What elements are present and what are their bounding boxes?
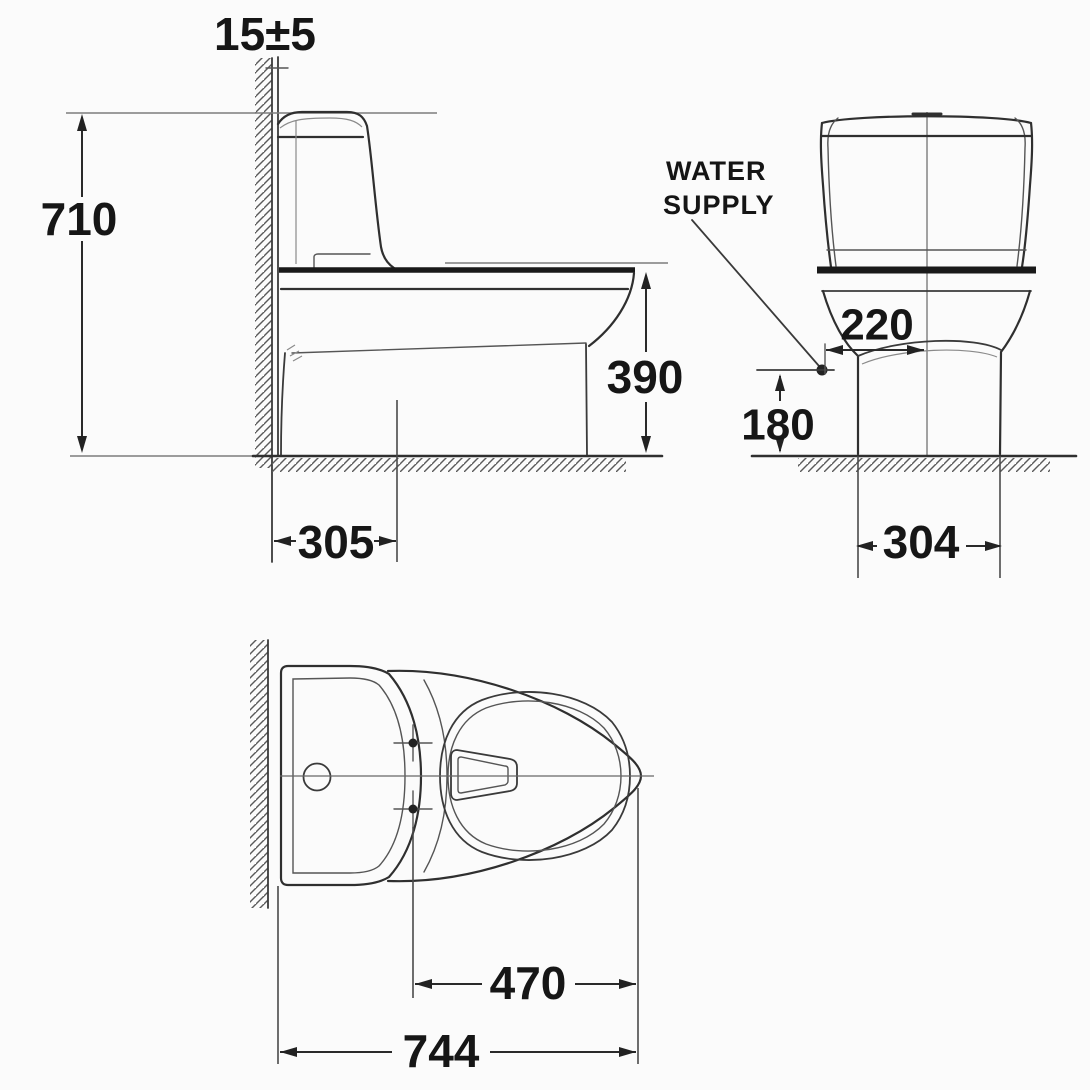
side-view: 15±5 710 390 xyxy=(41,8,684,568)
arrowhead-right xyxy=(619,979,636,989)
dim-supply-offset-value: 220 xyxy=(840,301,913,350)
dim-supply-height-value: 180 xyxy=(741,401,814,450)
bolt-dot xyxy=(409,805,418,814)
seat-hinge xyxy=(314,254,370,268)
outlet-marker-inner xyxy=(458,757,508,793)
arrowhead-up xyxy=(77,114,87,131)
top-wall-hatch xyxy=(250,640,268,908)
arrowhead-down xyxy=(641,436,651,453)
toilet-technical-drawing: 15±5 710 390 xyxy=(0,0,1090,1090)
front-bowl-contour-inner xyxy=(862,350,997,364)
dim-bolt-to-front-value: 470 xyxy=(490,957,567,1009)
dim-wall-clearance-value: 15±5 xyxy=(214,8,316,60)
arrowhead-down xyxy=(77,436,87,453)
front-bowl-right-side xyxy=(1000,291,1030,454)
dim-rim-height-value: 390 xyxy=(607,351,684,403)
dim-base-width-value: 304 xyxy=(883,516,960,568)
front-tank-left-inner xyxy=(828,118,838,266)
water-supply-label-line2: SUPPLY xyxy=(663,190,775,220)
side-wall-hatch xyxy=(255,58,272,468)
arrowhead-right xyxy=(619,1047,636,1057)
water-supply-leader-line xyxy=(692,220,819,366)
dim-overall-height-value: 710 xyxy=(41,193,118,245)
front-floor-hatch xyxy=(798,458,1050,472)
bolt-marker-bottom xyxy=(394,791,432,827)
dim-overall-depth-value: 744 xyxy=(403,1025,480,1077)
arrowhead-left xyxy=(415,979,432,989)
side-tank-lid-curve xyxy=(280,118,362,128)
arrowhead-left xyxy=(274,536,291,546)
bolt-marker-top xyxy=(394,725,432,761)
bowl-sweep-line xyxy=(292,343,586,353)
arrowhead-right xyxy=(379,536,396,546)
arrowhead-up xyxy=(641,272,651,289)
arrowhead-left xyxy=(280,1047,297,1057)
base-front-edge xyxy=(586,344,587,455)
arrowhead-up xyxy=(775,374,785,391)
front-view: WATER SUPPLY 220 180 304 xyxy=(663,112,1076,578)
top-view: 470 744 xyxy=(250,640,654,1077)
front-tank-right-inner xyxy=(1015,118,1025,266)
dim-outlet-from-wall-value: 305 xyxy=(298,516,375,568)
base-back-edge xyxy=(281,353,285,455)
water-supply-label-line1: WATER xyxy=(666,156,767,186)
side-floor-hatch xyxy=(272,458,626,472)
drawing-canvas: 15±5 710 390 xyxy=(0,0,1090,1090)
flush-button-circle xyxy=(304,764,331,791)
bolt-dot xyxy=(409,739,418,748)
bowl-front-curve xyxy=(589,273,634,346)
